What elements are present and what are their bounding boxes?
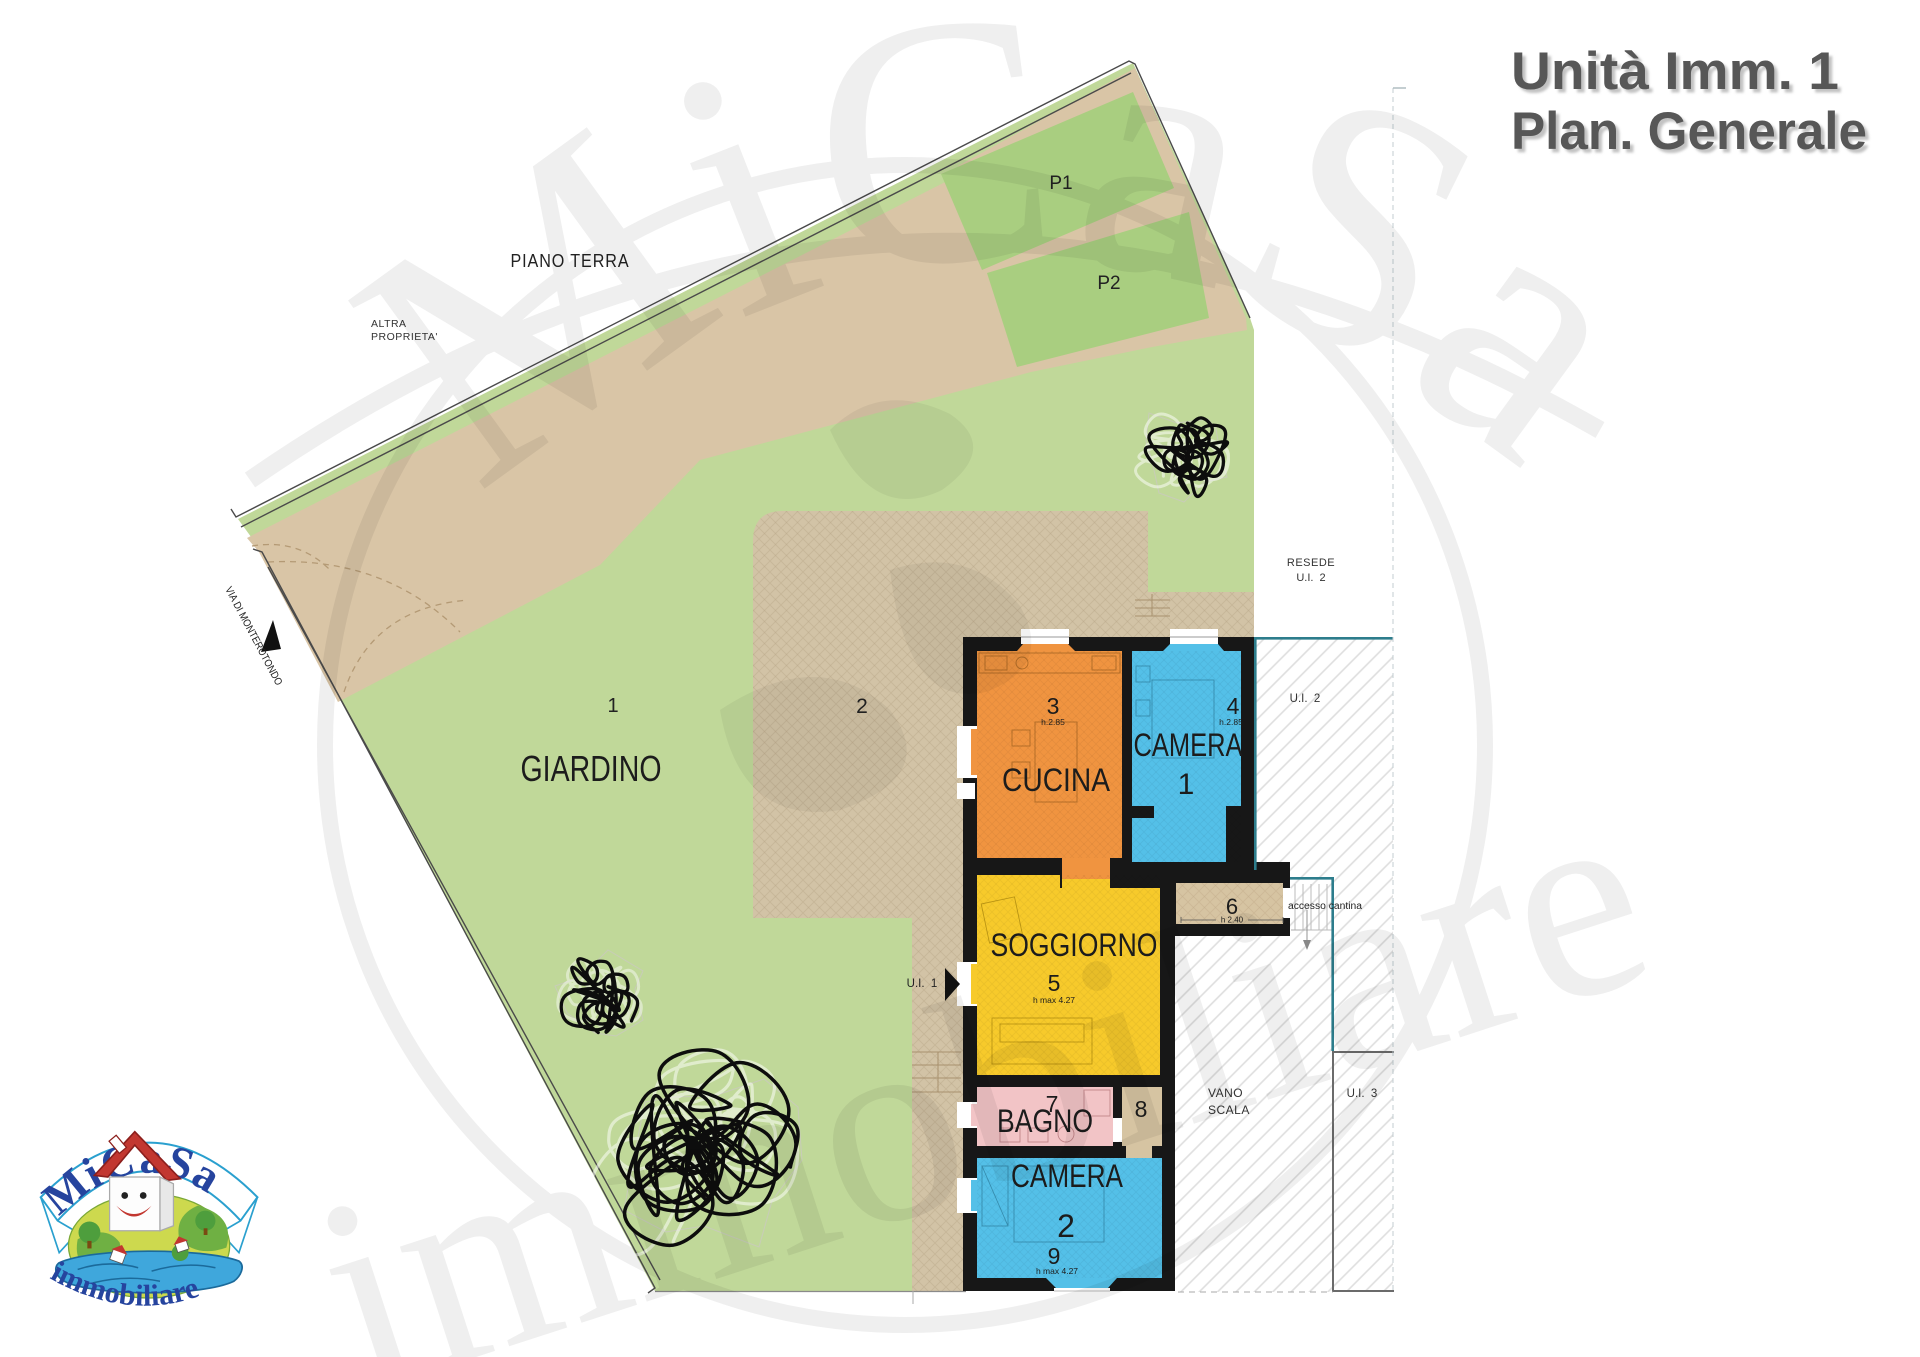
svg-text:U.I. 2: U.I. 2 <box>1290 693 1321 705</box>
svg-text:h max 4.27: h max 4.27 <box>1036 1266 1078 1276</box>
svg-text:h.2.85: h.2.85 <box>1219 717 1243 727</box>
svg-text:1: 1 <box>607 695 618 717</box>
svg-text:Unità Imm. 1: Unità Imm. 1 <box>1511 42 1839 101</box>
svg-text:1: 1 <box>1178 768 1195 801</box>
svg-text:GIARDINO: GIARDINO <box>521 748 662 789</box>
svg-text:Plan. Generale: Plan. Generale <box>1511 102 1867 161</box>
svg-text:RESEDE: RESEDE <box>1287 557 1335 569</box>
svg-text:4: 4 <box>1227 693 1240 719</box>
svg-text:CUCINA: CUCINA <box>1002 762 1111 798</box>
svg-text:h.2.85: h.2.85 <box>1041 717 1065 727</box>
svg-text:CAMERA: CAMERA <box>1134 727 1244 763</box>
svg-text:U.I. 2: U.I. 2 <box>1296 572 1325 584</box>
svg-text:3: 3 <box>1047 693 1060 719</box>
